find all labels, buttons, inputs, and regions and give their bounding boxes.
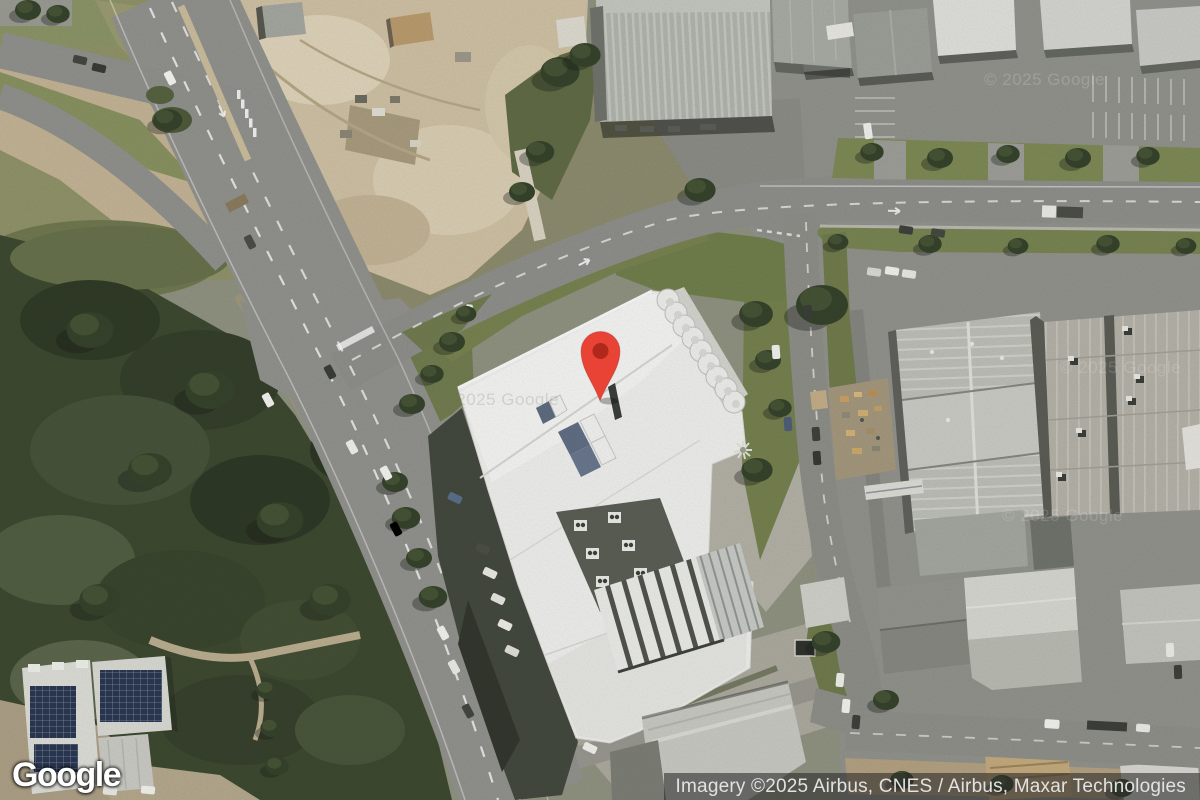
pin-dot bbox=[593, 343, 609, 359]
satellite-imagery bbox=[0, 0, 1200, 800]
satellite-map[interactable]: © 2025 Google © 2025 Google © 2025 Googl… bbox=[0, 0, 1200, 800]
google-logo[interactable]: Google bbox=[12, 756, 120, 795]
attribution-text: Imagery ©2025 Airbus, CNES / Airbus, Max… bbox=[676, 776, 1186, 797]
attribution-bar: Imagery ©2025 Airbus, CNES / Airbus, Max… bbox=[664, 773, 1200, 800]
